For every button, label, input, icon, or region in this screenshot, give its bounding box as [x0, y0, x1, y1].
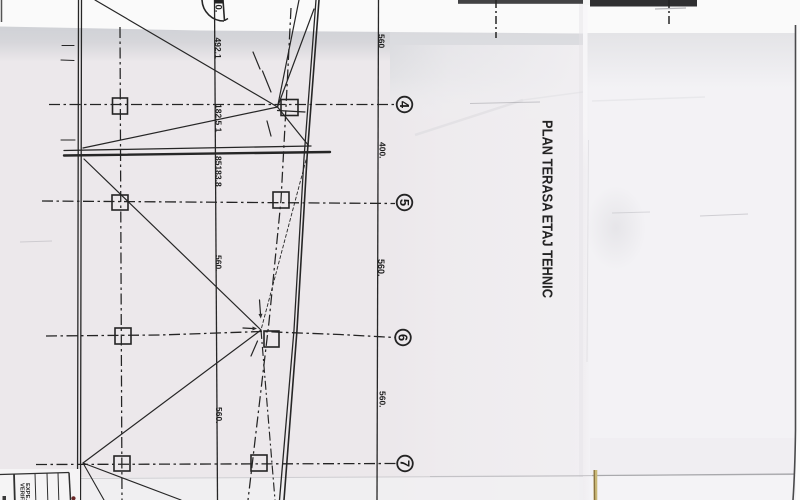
svg-text:560: 560: [377, 34, 387, 48]
svg-text:85183.8: 85183.8: [214, 156, 224, 187]
svg-text:5: 5: [397, 199, 412, 206]
svg-text:4: 4: [397, 101, 412, 109]
svg-text:400.: 400.: [378, 142, 388, 159]
svg-text:6: 6: [396, 334, 411, 341]
svg-text:560.: 560.: [376, 259, 386, 277]
svg-text:182.5 1: 182.5 1: [214, 104, 224, 133]
svg-text:EXPE.: EXPE.: [24, 483, 30, 500]
svg-text:560.: 560.: [214, 255, 224, 272]
svg-text:PLAN TERASA ETAJ TEHNIC: PLAN TERASA ETAJ TEHNIC: [539, 120, 556, 298]
svg-text:560.: 560.: [378, 391, 388, 408]
svg-text:492.1: 492.1: [213, 38, 223, 60]
svg-text:560.: 560.: [214, 407, 224, 424]
svg-text:VERIF.: VERIF.: [19, 483, 25, 500]
svg-text:7: 7: [398, 460, 413, 467]
svg-text:0.: 0.: [213, 5, 224, 13]
